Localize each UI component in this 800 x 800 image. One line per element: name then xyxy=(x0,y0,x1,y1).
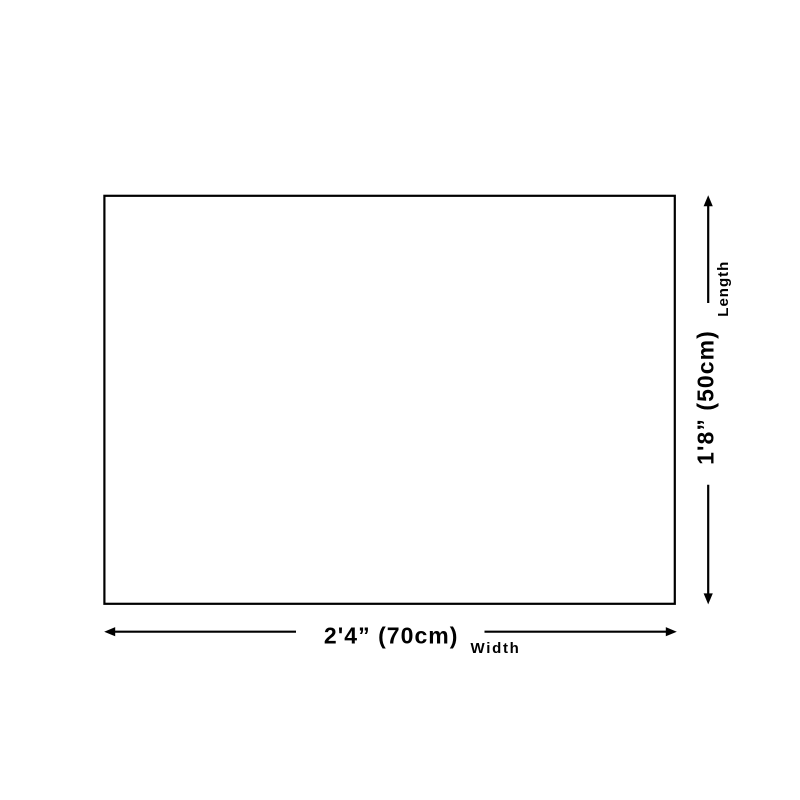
svg-text:1'8” (50cm): 1'8” (50cm) xyxy=(693,330,719,465)
svg-text:2'4” (70cm): 2'4” (70cm) xyxy=(324,623,459,649)
svg-text:Width: Width xyxy=(471,640,521,657)
svg-text:Length: Length xyxy=(715,261,732,317)
